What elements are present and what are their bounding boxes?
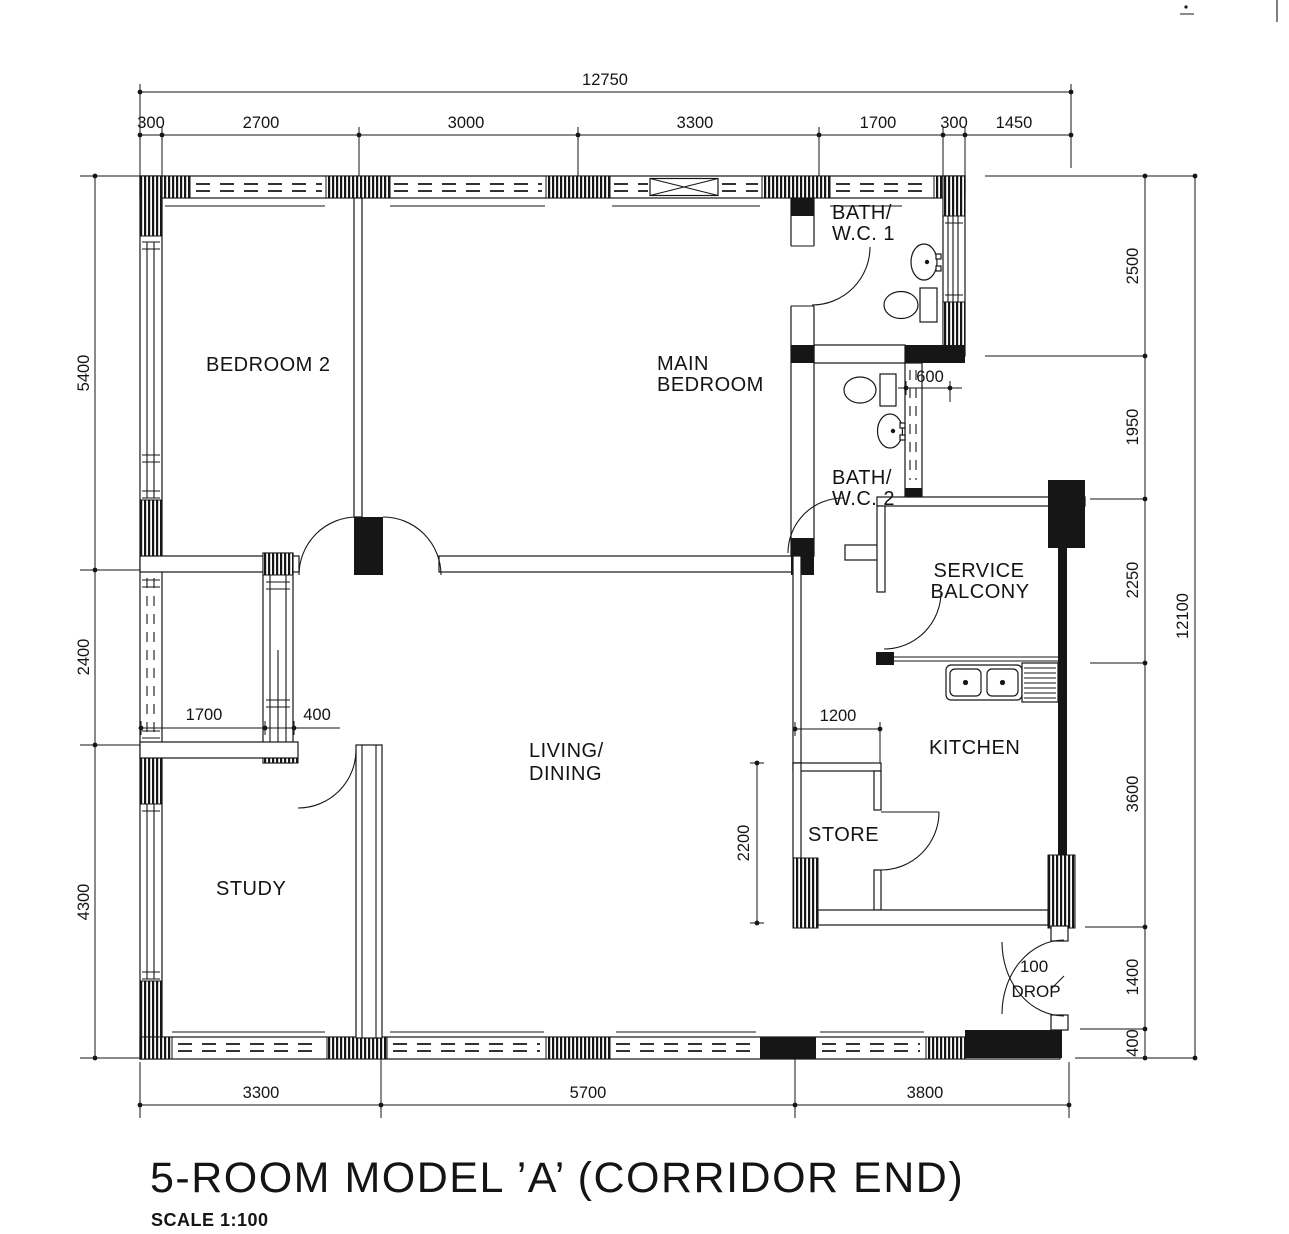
room-label-living-2: DINING (529, 763, 602, 785)
dim-right-total: 12100 (1174, 593, 1192, 639)
room-label-main-bedroom-2: BEDROOM (657, 374, 764, 396)
dim-right-2500: 2500 (1124, 248, 1142, 285)
floor-plan-page: 12750 300 2700 3000 3300 1700 300 1450 5… (0, 0, 1289, 1234)
dim-left-5400: 5400 (75, 355, 93, 392)
dim-store-1200: 1200 (820, 707, 857, 725)
dim-right-400: 400 (1124, 1029, 1142, 1057)
label-entrance-drop-1: 100 (1020, 957, 1048, 976)
room-label-bath2-1: BATH/ (832, 467, 892, 489)
drawing-title: 5-ROOM MODEL ’A’ (CORRIDOR END) (150, 1154, 964, 1202)
dim-right-2250: 2250 (1124, 562, 1142, 599)
scan-artifacts (1180, 0, 1277, 22)
dim-top-total: 12750 (582, 71, 628, 89)
dim-left-4300: 4300 (75, 884, 93, 921)
dimension-top: 12750 300 2700 3000 3300 1700 300 1450 (137, 71, 1073, 176)
dim-top-300b: 300 (940, 114, 968, 132)
dimension-right: 2500 1950 2250 3600 1400 400 12100 (985, 174, 1197, 1061)
dim-top-1450: 1450 (996, 114, 1033, 132)
room-label-kitchen: KITCHEN (929, 737, 1020, 759)
room-label-bath2-2: W.C. 2 (832, 488, 895, 510)
dim-bottom-3800: 3800 (907, 1084, 944, 1102)
room-label-bath1-1: BATH/ (832, 202, 892, 224)
dim-top-3300: 3300 (677, 114, 714, 132)
room-label-living-1: LIVING/ (529, 740, 604, 762)
drawing-scale: SCALE 1:100 (151, 1210, 269, 1230)
dim-left-2400: 2400 (75, 639, 93, 676)
dim-duct-400: 400 (303, 706, 331, 724)
dim-top-1700: 1700 (860, 114, 897, 132)
dim-bottom-3300: 3300 (243, 1084, 280, 1102)
dim-hall-1700: 1700 (186, 706, 223, 724)
floor-plan-drawing: 12750 300 2700 3000 3300 1700 300 1450 5… (0, 0, 1289, 1234)
room-label-service-balcony-2: BALCONY (930, 581, 1029, 603)
dim-store-2200: 2200 (735, 825, 753, 862)
dim-right-3600: 3600 (1124, 776, 1142, 813)
label-entrance-drop-2: DROP (1011, 982, 1060, 1001)
dimension-left: 5400 2400 4300 (75, 174, 140, 1061)
dim-bath-600: 600 (916, 368, 944, 386)
dim-right-1400: 1400 (1124, 959, 1142, 996)
room-label-bedroom2: BEDROOM 2 (206, 354, 331, 376)
dim-top-2700: 2700 (243, 114, 280, 132)
kitchen-fixtures (884, 657, 1058, 702)
title-block: 5-ROOM MODEL ’A’ (CORRIDOR END) SCALE 1:… (150, 1154, 964, 1230)
dim-top-300a: 300 (137, 114, 165, 132)
dim-right-1950: 1950 (1124, 409, 1142, 446)
room-label-main-bedroom-1: MAIN (657, 353, 709, 375)
dim-top-3000: 3000 (448, 114, 485, 132)
room-label-service-balcony-1: SERVICE (934, 560, 1025, 582)
dim-bottom-5700: 5700 (570, 1084, 607, 1102)
room-label-study: STUDY (216, 878, 286, 900)
room-label-bath1-2: W.C. 1 (832, 223, 895, 245)
room-label-store: STORE (808, 824, 879, 846)
